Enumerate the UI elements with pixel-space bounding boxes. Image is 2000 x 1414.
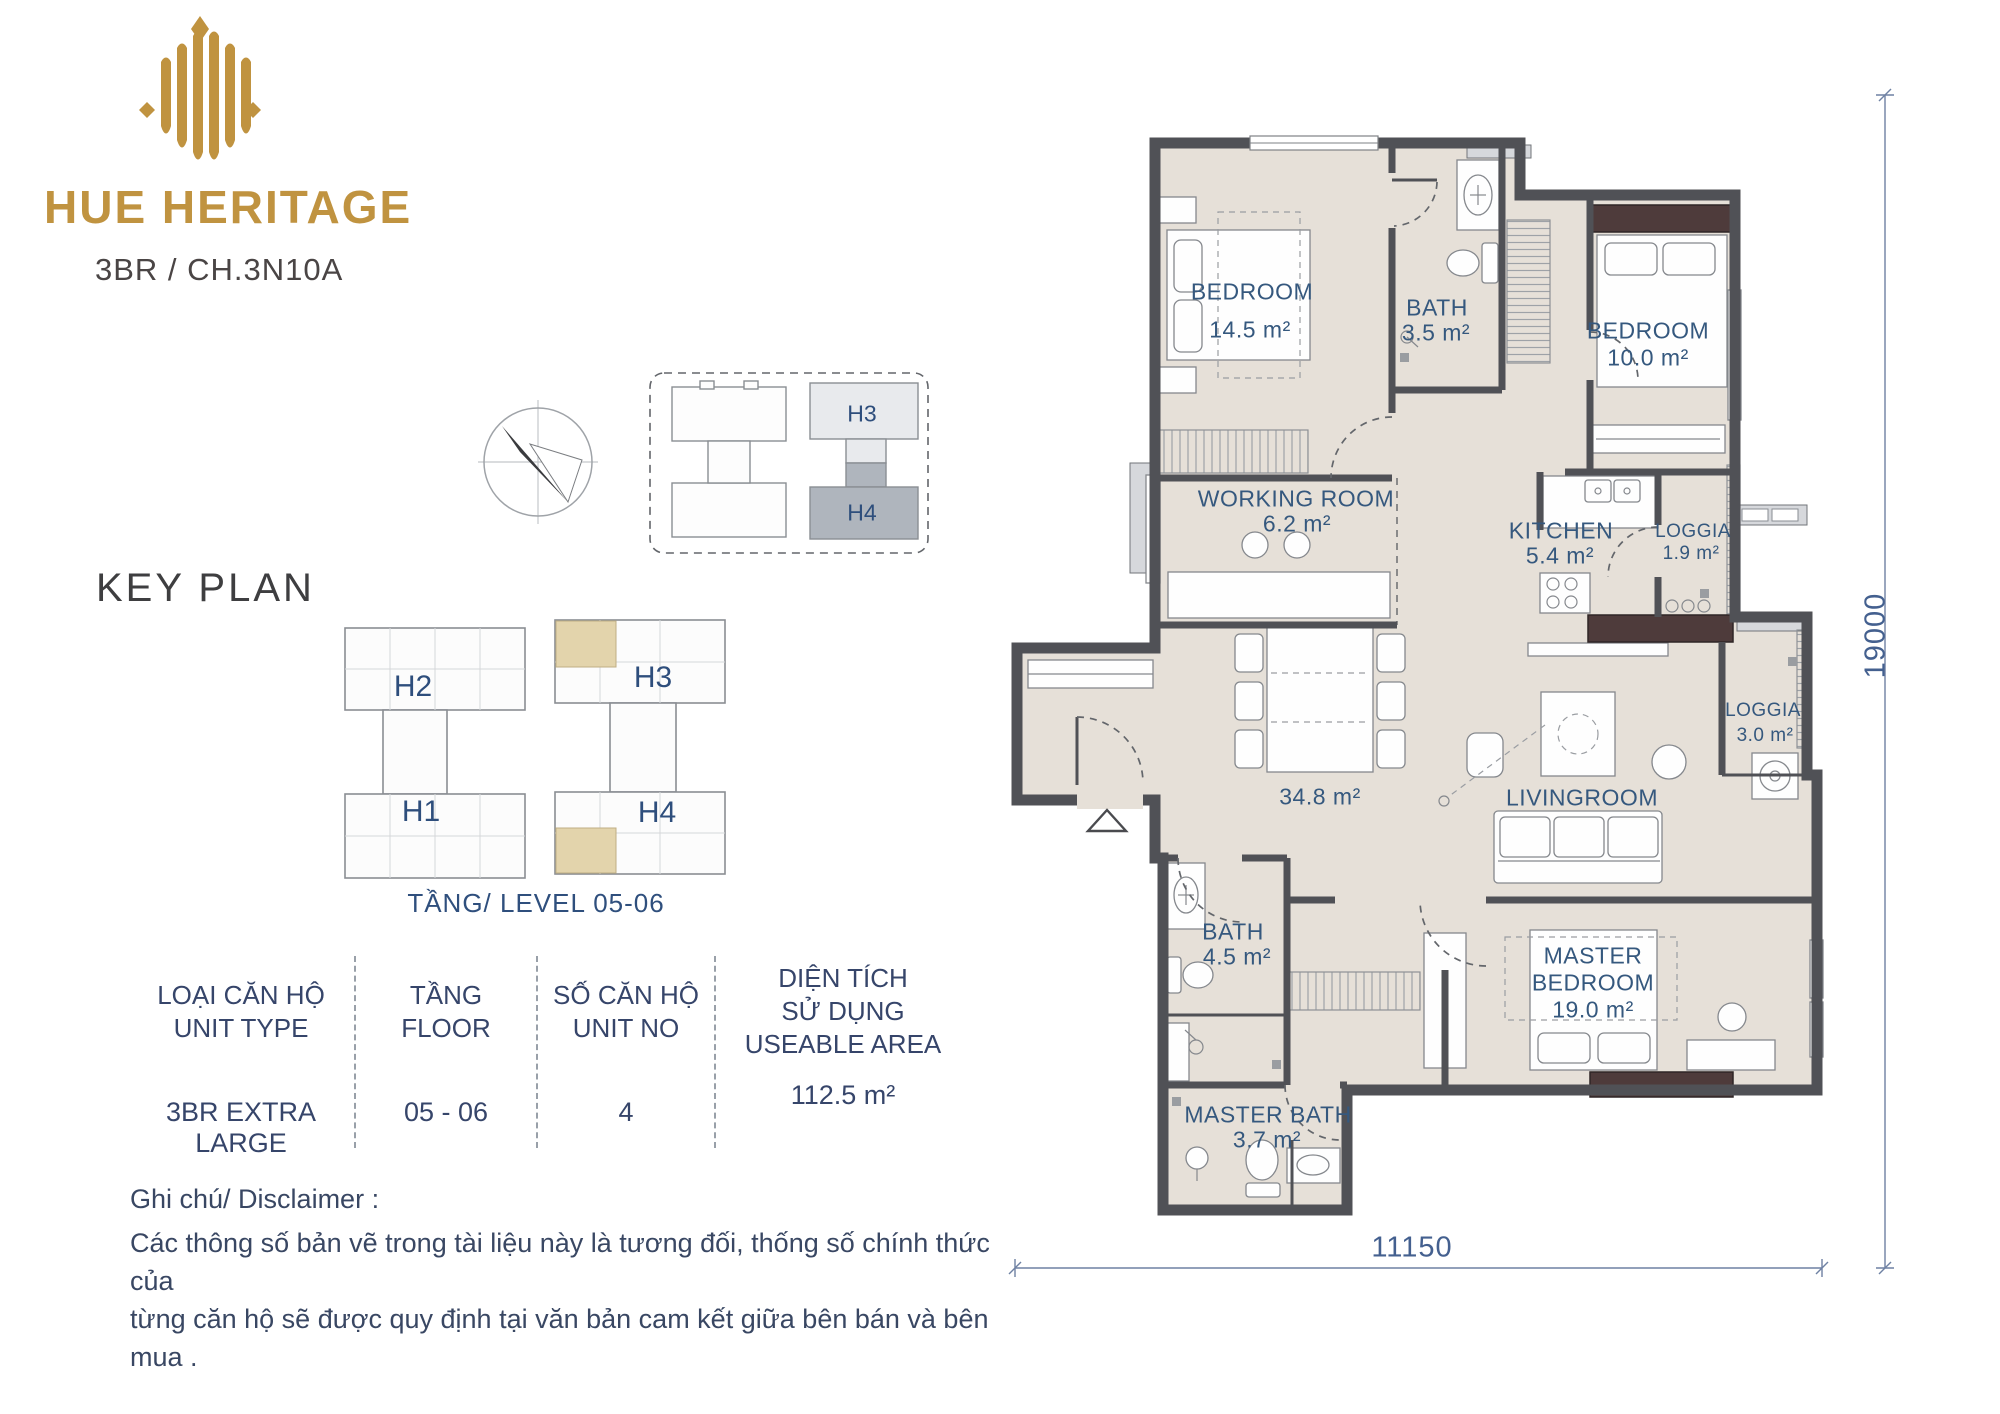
spec-header-line: LOẠI CĂN HỘ: [128, 979, 354, 1012]
brand-wordmark: HUE HERITAGE: [44, 180, 424, 234]
spec-value-useable-area: 112.5 m²: [716, 1080, 970, 1111]
room-label-bath1-name: BATH: [1406, 295, 1468, 322]
mini-key-plan-label-h4: H4: [847, 500, 876, 527]
room-label-master-name-1: MASTER: [1544, 943, 1643, 970]
spec-col-unit-type: LOẠI CĂN HỘ UNIT TYPE 3BR EXTRA LARGE: [128, 956, 354, 1148]
spec-header-line: FLOOR: [356, 1012, 536, 1045]
brand-monogram-icon: [135, 14, 265, 166]
disclaimer-line-2: từng căn hộ sẽ được quy định tại văn bản…: [130, 1300, 1010, 1376]
dimension-height: 19000: [1843, 600, 1909, 670]
spec-col-floor: TẦNG FLOOR 05 - 06: [354, 956, 536, 1148]
disclaimer-line-1: Các thông số bản vẽ trong tài liệu này l…: [130, 1224, 1010, 1300]
key-plan-label-h3: H3: [634, 661, 672, 695]
room-label-loggia1-area: 1.9 m²: [1663, 543, 1720, 565]
room-label-loggia2-name: LOGGIA: [1725, 700, 1801, 722]
room-label-working-name: WORKING ROOM: [1198, 486, 1394, 513]
spec-value-floor: 05 - 06: [356, 1097, 536, 1128]
floor-plan-drawing: [1000, 85, 1910, 1295]
spec-value-unit-no: 4: [538, 1097, 714, 1128]
room-label-living-name: LIVINGROOM: [1506, 785, 1658, 812]
spec-table: LOẠI CĂN HỘ UNIT TYPE 3BR EXTRA LARGE TẦ…: [128, 956, 970, 1148]
disclaimer: Ghi chú/ Disclaimer : Các thông số bản v…: [130, 1180, 1010, 1376]
room-label-kitchen-area: 5.4 m²: [1526, 543, 1594, 570]
unit-code: 3BR / CH.3N10A: [95, 252, 343, 288]
compass-icon: [478, 400, 598, 524]
room-label-bath2-area: 4.5 m²: [1203, 944, 1271, 971]
spec-header-line: DIỆN TÍCH: [716, 962, 970, 995]
mini-key-plan: [648, 371, 930, 555]
room-label-working-area: 6.2 m²: [1263, 511, 1331, 538]
room-label-master-bath-area: 3.7 m²: [1233, 1127, 1301, 1154]
disclaimer-heading: Ghi chú/ Disclaimer :: [130, 1180, 1010, 1218]
spec-col-useable-area: DIỆN TÍCH SỬ DỤNG USEABLE AREA 112.5 m²: [714, 956, 970, 1148]
spec-value-unit-type: 3BR EXTRA LARGE: [128, 1097, 354, 1159]
key-plan-label-h4: H4: [638, 796, 676, 830]
key-plan-label-h1: H1: [402, 795, 440, 829]
room-label-bath1-area: 3.5 m²: [1402, 320, 1470, 347]
spec-header-line: UNIT NO: [538, 1012, 714, 1045]
spec-header-line: UNIT TYPE: [128, 1012, 354, 1045]
dimension-height-value: 19000: [1860, 592, 1893, 678]
room-label-loggia1-name: LOGGIA: [1655, 521, 1731, 543]
spec-header-line: USEABLE AREA: [716, 1028, 970, 1061]
key-plan-label-h2: H2: [394, 670, 432, 704]
room-label-bedroom2-area: 10.0 m²: [1607, 345, 1688, 372]
room-label-bedroom2-name: BEDROOM: [1587, 318, 1709, 345]
key-plan-buildings: [330, 612, 742, 880]
room-label-dining-area: 34.8 m²: [1279, 784, 1360, 811]
room-label-kitchen-name: KITCHEN: [1509, 518, 1613, 545]
spec-col-unit-no: SỐ CĂN HỘ UNIT NO 4: [536, 956, 714, 1148]
spec-header-line: SỐ CĂN HỘ: [538, 979, 714, 1012]
room-label-bath2-name: BATH: [1202, 919, 1264, 946]
spec-header-line: TẦNG: [356, 979, 536, 1012]
room-label-master-bath-name: MASTER BATH: [1184, 1102, 1351, 1129]
room-label-loggia2-area: 3.0 m²: [1737, 725, 1794, 747]
dimension-width-value: 11150: [1371, 1232, 1452, 1265]
spec-header-line: SỬ DỤNG: [716, 995, 970, 1028]
room-label-bedroom1-name: BEDROOM: [1191, 279, 1313, 306]
room-label-master-area: 19.0 m²: [1552, 997, 1633, 1024]
mini-key-plan-label-h3: H3: [847, 401, 876, 428]
key-plan-title: KEY PLAN: [96, 566, 315, 611]
room-label-bedroom1-area: 14.5 m²: [1209, 317, 1290, 344]
level-caption: TẦNG/ LEVEL 05-06: [330, 888, 742, 919]
room-label-master-name-2: BEDROOM: [1532, 970, 1654, 997]
